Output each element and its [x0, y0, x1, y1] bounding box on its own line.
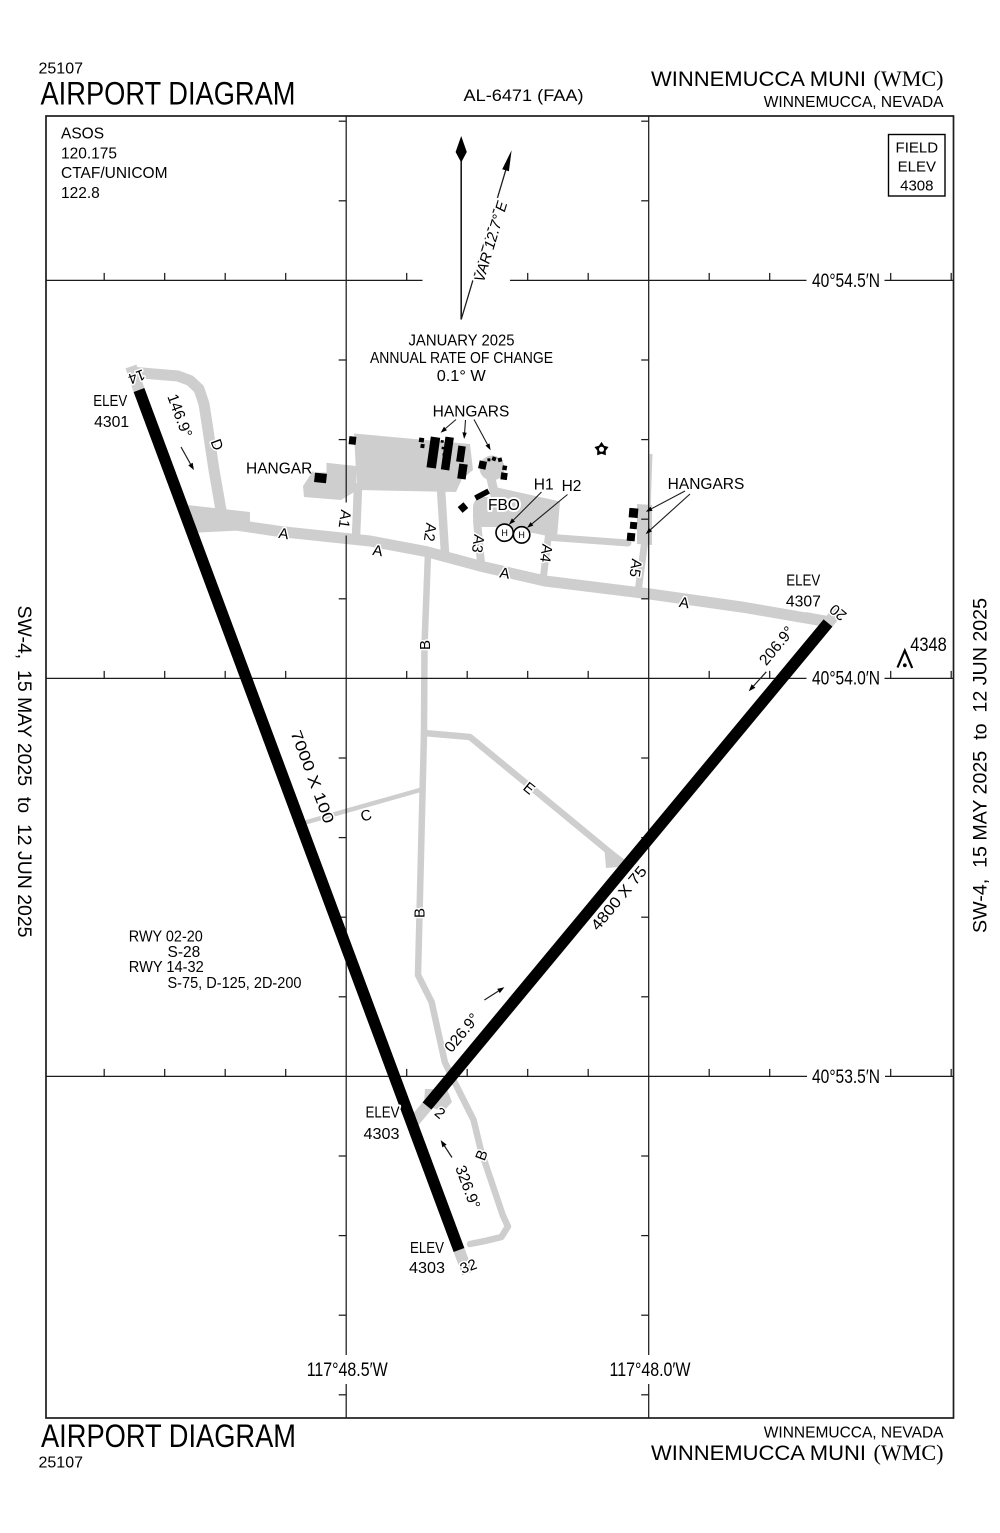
svg-text:WINNEMUCCA MUNI: WINNEMUCCA MUNI — [651, 67, 866, 91]
svg-text:FIELD: FIELD — [896, 140, 939, 157]
svg-text:FBO: FBO — [488, 497, 520, 514]
svg-text:WINNEMUCCA, NEVADA: WINNEMUCCA, NEVADA — [764, 1425, 944, 1442]
svg-text:A4: A4 — [536, 543, 555, 564]
svg-text:SW-4, 15 MAY 2025 to 12 JUN: SW-4, 15 MAY 2025 to 12 JUN 2025 — [13, 606, 34, 938]
svg-text:117°48.5′W: 117°48.5′W — [307, 1360, 388, 1381]
svg-text:A2: A2 — [420, 522, 439, 543]
svg-text:WINNEMUCCA, NEVADA: WINNEMUCCA, NEVADA — [764, 94, 944, 111]
svg-text:4308: 4308 — [900, 178, 933, 195]
svg-text:25107: 25107 — [39, 1455, 84, 1472]
svg-text:ELEV: ELEV — [93, 393, 128, 410]
svg-text:ELEV: ELEV — [410, 1240, 445, 1257]
svg-text:4307: 4307 — [786, 594, 821, 611]
svg-text:ELEV: ELEV — [898, 159, 936, 176]
svg-text:SW-4, 15 MAY 2025 to 12 JUN: SW-4, 15 MAY 2025 to 12 JUN 2025 — [971, 598, 992, 933]
svg-text:HANGARS: HANGARS — [433, 404, 510, 421]
svg-text:4301: 4301 — [94, 414, 129, 431]
svg-text:4303: 4303 — [364, 1126, 400, 1143]
svg-text:RWY 14-32: RWY 14-32 — [129, 959, 204, 976]
svg-text:HANGAR: HANGAR — [246, 461, 312, 478]
svg-text:ANNUAL RATE OF CHANGE: ANNUAL RATE OF CHANGE — [370, 350, 553, 367]
svg-text:CTAF/UNICOM: CTAF/UNICOM — [61, 165, 167, 182]
svg-text:4303: 4303 — [409, 1260, 445, 1277]
svg-text:S-75, D-125, 2D-200: S-75, D-125, 2D-200 — [168, 975, 302, 992]
svg-text:0.1° W: 0.1° W — [437, 368, 486, 385]
svg-text:HANGARS: HANGARS — [668, 476, 745, 493]
svg-text:B: B — [411, 908, 428, 918]
svg-text:(WMC): (WMC) — [874, 66, 944, 91]
svg-text:4348: 4348 — [910, 635, 947, 656]
svg-text:ELEV: ELEV — [786, 573, 821, 590]
svg-text:H: H — [501, 528, 508, 538]
svg-text:AIRPORT DIAGRAM: AIRPORT DIAGRAM — [41, 76, 296, 112]
svg-text:WINNEMUCCA MUNI: WINNEMUCCA MUNI — [651, 1441, 866, 1465]
svg-text:B: B — [417, 640, 434, 650]
svg-text:H: H — [518, 530, 525, 540]
svg-text:AL-6471 (FAA): AL-6471 (FAA) — [464, 87, 584, 105]
svg-text:(WMC): (WMC) — [874, 1440, 944, 1465]
svg-text:40°54.5′N: 40°54.5′N — [812, 271, 880, 292]
svg-text:ELEV: ELEV — [366, 1105, 401, 1122]
svg-text:RWY 02-20: RWY 02-20 — [129, 929, 203, 946]
svg-text:117°48.0′W: 117°48.0′W — [610, 1360, 691, 1381]
svg-text:JANUARY 2025: JANUARY 2025 — [409, 332, 515, 349]
svg-text:H2: H2 — [562, 478, 582, 495]
svg-text:H1: H1 — [534, 477, 554, 494]
svg-text:122.8: 122.8 — [61, 185, 100, 202]
svg-text:40°54.0′N: 40°54.0′N — [812, 669, 880, 690]
svg-text:A3: A3 — [468, 533, 487, 554]
svg-text:A1: A1 — [335, 509, 354, 530]
svg-text:120.175: 120.175 — [61, 145, 117, 162]
svg-text:AIRPORT DIAGRAM: AIRPORT DIAGRAM — [41, 1418, 296, 1454]
svg-text:A5: A5 — [625, 558, 644, 579]
svg-text:40°53.5′N: 40°53.5′N — [812, 1067, 880, 1088]
svg-text:ASOS: ASOS — [61, 126, 104, 143]
